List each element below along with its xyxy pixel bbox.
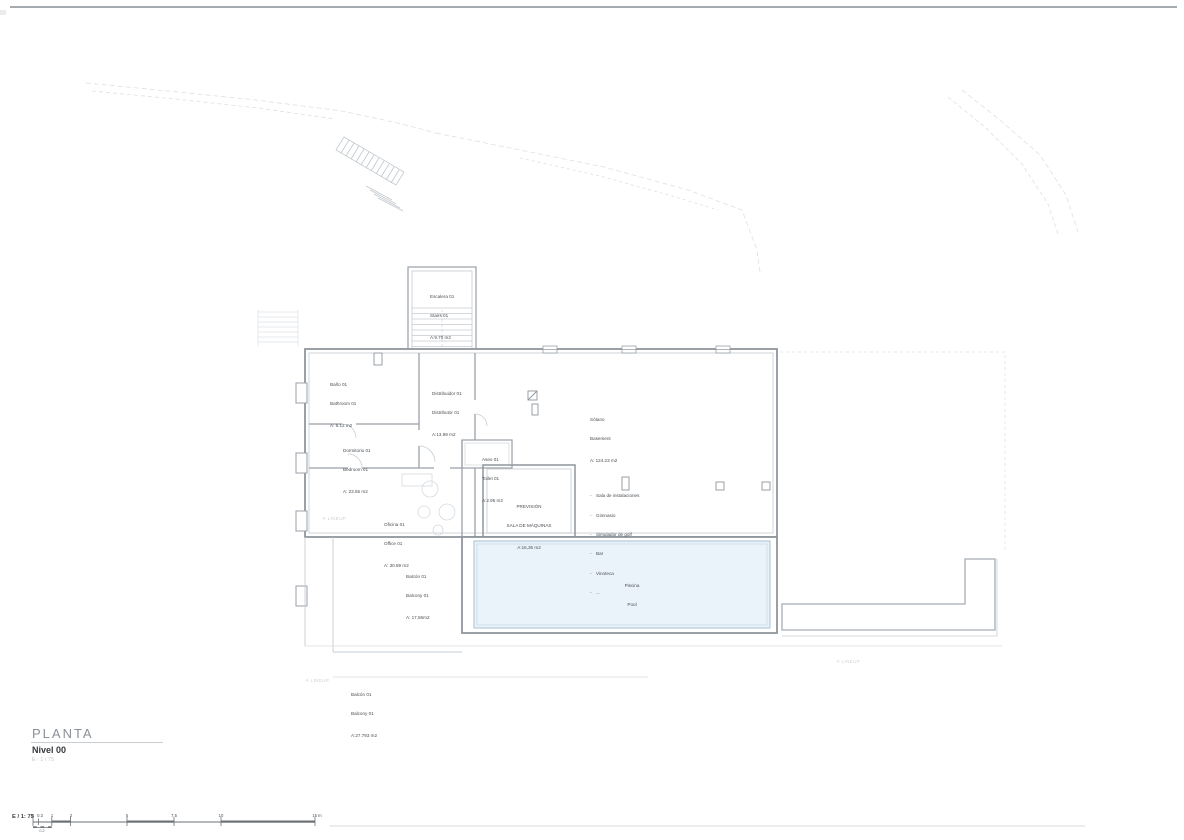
scalebar-tick: 10 bbox=[219, 813, 224, 818]
right-deck-band bbox=[782, 559, 997, 636]
scalebar-tick: 15 m bbox=[312, 813, 321, 818]
watermark-logo-icon: ✳ bbox=[305, 678, 310, 684]
scalebar-label: E / 1: 75 bbox=[12, 814, 34, 820]
watermark-logo: ✳LINEUP bbox=[305, 678, 329, 684]
scale-note: E : 1 / 75 bbox=[32, 757, 54, 763]
scalebar-graphics bbox=[33, 817, 1085, 828]
floor-plan-page: Escalera 01 Stairs 01 A:9.70 m2 Baño 01 … bbox=[0, 0, 1184, 840]
room-label-pool: Piscina Pool bbox=[625, 570, 640, 621]
title-underline bbox=[31, 742, 163, 743]
level-subtitle: Nivel 00 bbox=[32, 745, 66, 755]
room-label-bathroom: Baño 01 Bathroom 01 A: 6.12 m2 bbox=[330, 369, 356, 443]
scalebar-tick: 1 bbox=[51, 813, 53, 818]
room-label-balcony-upper: Balcón 01 Balcony 01 A: 17,56m2 bbox=[406, 561, 430, 635]
scalebar-tick: 7.5 bbox=[171, 813, 177, 818]
exterior-stair-left bbox=[258, 310, 298, 346]
watermark-logo: ✳LINEUP bbox=[322, 516, 346, 522]
room-label-machine-room: PREVISIÓN SALA DE MÁQUINAS A:16,36 m2 bbox=[507, 491, 552, 565]
watermark-logo-icon: ✳ bbox=[836, 659, 841, 665]
exterior-ramp-hatch bbox=[336, 137, 404, 211]
watermark-logo: ✳LINEUP bbox=[836, 659, 860, 665]
scalebar-tick: 2 bbox=[70, 813, 72, 818]
room-label-balcony-lower: Balcón 01 Balcony 01 A:27.793 m2 bbox=[351, 679, 377, 753]
room-label-bedroom: Dormitorio 01 Bedroom 01 A: 23.55 m2 bbox=[343, 435, 371, 509]
room-label-hall: Distribuidor 01 Distributor 01 A:13.99 m… bbox=[432, 378, 462, 452]
page-title: PLANTA bbox=[32, 726, 94, 741]
scalebar-tick: 5 bbox=[126, 813, 128, 818]
room-label-stairs: Escalera 01 Stairs 01 A:9.70 m2 bbox=[430, 281, 454, 355]
scalebar-subtick: 0.2 bbox=[39, 829, 44, 833]
watermark-logo-icon: ✳ bbox=[322, 516, 327, 522]
room-label-toilet: Aseo 01 Toilet 01 A:2.95 m2 bbox=[482, 444, 503, 518]
scalebar-tick: 0.3 bbox=[37, 813, 43, 818]
scalebar-tick: 0 bbox=[32, 813, 34, 818]
